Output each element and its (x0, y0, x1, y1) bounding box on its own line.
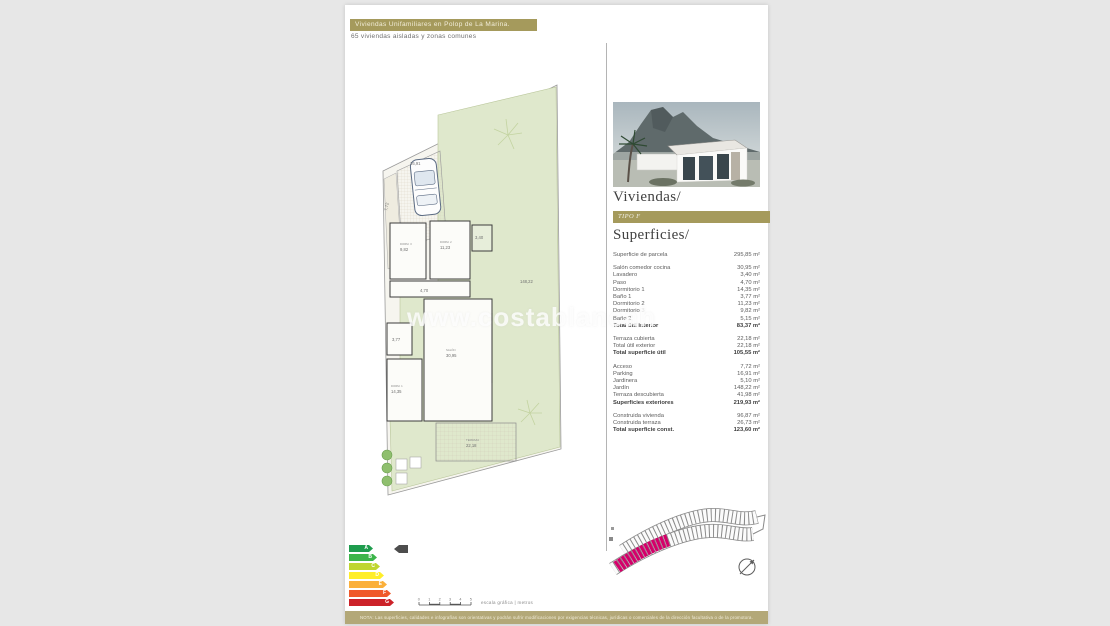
scale-tick-numbers: 0 1 2 3 4 5 (418, 598, 472, 602)
viviendas-title: Viviendas/ (613, 189, 681, 206)
surface-label: Terraza descubierta (613, 392, 664, 399)
energy-bar-letter: G (385, 599, 389, 606)
svg-text:0: 0 (418, 598, 420, 602)
header-banner: Viviendas Unifamiliares en Polop de La M… (350, 19, 537, 31)
surface-label: Dormitorio 2 (613, 301, 645, 308)
surface-label: Parking (613, 371, 633, 378)
header-subtitle: 65 viviendas aisladas y zonas comunes (351, 33, 476, 40)
energy-bar-letter: A (364, 545, 368, 552)
energy-bar-a: A (349, 545, 373, 552)
surface-section: Construida vivienda96,87 m²Construida te… (613, 413, 760, 435)
header-banner-title: Viviendas Unifamiliares en Polop de La M… (355, 21, 510, 28)
energy-bar-letter: E (379, 581, 382, 588)
svg-text:14,35: 14,35 (391, 389, 402, 394)
surface-value: 5,15 m² (740, 316, 760, 323)
footer-disclaimer-text: NOTA: Las superficies, calidades e infog… (360, 615, 753, 620)
energy-bar-letter: B (368, 554, 372, 561)
energy-bar-b: B (349, 554, 377, 561)
surface-value: 9,82 m² (740, 308, 760, 315)
site-plan (607, 501, 767, 585)
surface-row: Superficies exteriores219,93 m² (613, 400, 760, 407)
surface-label: Baño 1 (613, 294, 631, 301)
surface-row: Total útil interior83,37 m² (613, 323, 760, 330)
surface-section: Superficie de parcela295,85 m² (613, 252, 760, 259)
svg-text:DORM. 2: DORM. 2 (440, 240, 452, 244)
surface-row: Acceso7,72 m² (613, 364, 760, 371)
surface-value: 295,85 m² (734, 252, 760, 259)
footer-disclaimer-bar: NOTA: Las superficies, calidades e infog… (345, 611, 768, 624)
energy-bar-e: E (349, 581, 387, 588)
energy-bar-letter: C (371, 563, 375, 570)
surface-label: Dormitorio 3 (613, 308, 645, 315)
svg-text:3,40: 3,40 (475, 235, 484, 240)
energy-bar-c: C (349, 563, 380, 570)
energy-bar-d: D (349, 572, 384, 579)
surface-label: Acceso (613, 364, 632, 371)
surface-row: Total superficie útil105,55 m² (613, 350, 760, 357)
surface-label: Total útil exterior (613, 343, 655, 350)
surface-value: 3,40 m² (740, 272, 760, 279)
surface-value: 3,77 m² (740, 294, 760, 301)
surface-row: Dormitorio 114,35 m² (613, 287, 760, 294)
surface-label: Jardín (613, 385, 629, 392)
surface-value: 123,60 m² (734, 427, 760, 434)
svg-text:DORM. 1: DORM. 1 (391, 384, 403, 388)
surface-row: Baño 25,15 m² (613, 316, 760, 323)
svg-text:148,22: 148,22 (520, 279, 533, 284)
energy-bar-letter: D (375, 572, 379, 579)
surface-row: Jardín148,22 m² (613, 385, 760, 392)
surface-value: 105,55 m² (734, 350, 760, 357)
surface-row: Construida vivienda96,87 m² (613, 413, 760, 420)
surface-row: Salón comedor cocina30,95 m² (613, 265, 760, 272)
svg-text:9,82: 9,82 (400, 247, 409, 252)
svg-text:3,77: 3,77 (392, 337, 401, 342)
surface-row: Dormitorio 211,23 m² (613, 301, 760, 308)
surface-label: Construida terraza (613, 420, 661, 427)
type-badge: TIPO F (613, 211, 770, 223)
vertical-divider (606, 43, 607, 551)
svg-text:4,70: 4,70 (420, 288, 429, 293)
surface-label: Baño 2 (613, 316, 631, 323)
svg-text:1: 1 (428, 598, 430, 602)
svg-text:DORM. 3: DORM. 3 (400, 242, 412, 246)
energy-bar-letter: F (383, 590, 386, 597)
surface-label: Superficie de parcela (613, 252, 667, 259)
surface-value: 96,87 m² (737, 413, 760, 420)
villa-photo (613, 102, 760, 187)
surface-label: Dormitorio 1 (613, 287, 645, 294)
floor-plan: DORM. 3 9,82 DORM. 2 11,23 3,40 4,70 3,7… (380, 83, 565, 498)
surface-value: 41,98 m² (737, 392, 760, 399)
surface-label: Total útil interior (613, 323, 658, 330)
scale-caption: escala gráfica | metros (481, 600, 533, 605)
surface-section: Acceso7,72 m²Parking16,91 m²Jardinera5,1… (613, 364, 760, 407)
stone-pillar (731, 152, 740, 180)
svg-text:5: 5 (470, 598, 472, 602)
surface-value: 83,37 m² (737, 323, 760, 330)
surface-value: 7,72 m² (740, 364, 760, 371)
svg-text:16,91: 16,91 (410, 161, 421, 166)
surface-label: Construida vivienda (613, 413, 664, 420)
surface-label: Lavadero (613, 272, 637, 279)
svg-text:11,23: 11,23 (440, 245, 451, 250)
document-canvas: Viviendas Unifamiliares en Polop de La M… (0, 0, 1110, 626)
surface-value: 148,22 m² (734, 385, 760, 392)
surfaces-table: Superficie de parcela295,85 m²Salón come… (613, 252, 760, 440)
energy-bar-g: G (349, 599, 394, 606)
surface-label: Terraza cubierta (613, 336, 655, 343)
svg-text:30,95: 30,95 (446, 353, 457, 358)
superficies-title: Superficies/ (613, 227, 689, 244)
surface-row: Total superficie const.123,60 m² (613, 427, 760, 434)
surface-label: Total superficie útil (613, 350, 666, 357)
surface-value: 11,23 m² (738, 301, 760, 308)
svg-text:3: 3 (449, 598, 451, 602)
surface-label: Superficies exteriores (613, 400, 674, 407)
svg-text:22,18: 22,18 (466, 443, 477, 448)
surface-row: Paso4,70 m² (613, 280, 760, 287)
scale-bar-graphic: 0 1 2 3 4 5 (417, 596, 475, 608)
terrace-area (436, 423, 516, 461)
energy-bar-f: F (349, 590, 391, 597)
svg-text:2: 2 (439, 598, 441, 602)
surface-value: 30,95 m² (737, 265, 760, 272)
surface-value: 5,10 m² (740, 378, 760, 385)
surface-label: Paso (613, 280, 626, 287)
brochure-page: Viviendas Unifamiliares en Polop de La M… (345, 5, 768, 624)
surface-row: Terraza cubierta22,18 m² (613, 336, 760, 343)
surface-row: Dormitorio 39,82 m² (613, 308, 760, 315)
svg-text:4: 4 (459, 598, 461, 602)
surface-section: Salón comedor cocina30,95 m²Lavadero3,40… (613, 265, 760, 330)
surface-row: Jardinera5,10 m² (613, 378, 760, 385)
north-compass-icon (739, 559, 755, 575)
surface-row: Parking16,91 m² (613, 371, 760, 378)
surface-value: 22,18 m² (737, 336, 760, 343)
surface-value: 14,35 m² (737, 287, 760, 294)
surface-row: Baño 13,77 m² (613, 294, 760, 301)
graphic-scale: 0 1 2 3 4 5 escala gráfica | metros (417, 596, 533, 608)
surface-row: Lavadero3,40 m² (613, 272, 760, 279)
surface-row: Superficie de parcela295,85 m² (613, 252, 760, 259)
svg-text:SALÓN: SALÓN (446, 347, 455, 352)
surface-value: 4,70 m² (740, 280, 760, 287)
svg-text:TERRAZA: TERRAZA (466, 438, 479, 442)
surface-label: Jardinera (613, 378, 637, 385)
surface-row: Terraza descubierta41,98 m² (613, 392, 760, 399)
car-icon (410, 158, 442, 216)
surface-value: 16,91 m² (737, 371, 760, 378)
surface-value: 219,93 m² (734, 400, 760, 407)
surface-label: Salón comedor cocina (613, 265, 670, 272)
surface-label: Total superficie const. (613, 427, 674, 434)
surface-section: Terraza cubierta22,18 m²Total útil exter… (613, 336, 760, 358)
